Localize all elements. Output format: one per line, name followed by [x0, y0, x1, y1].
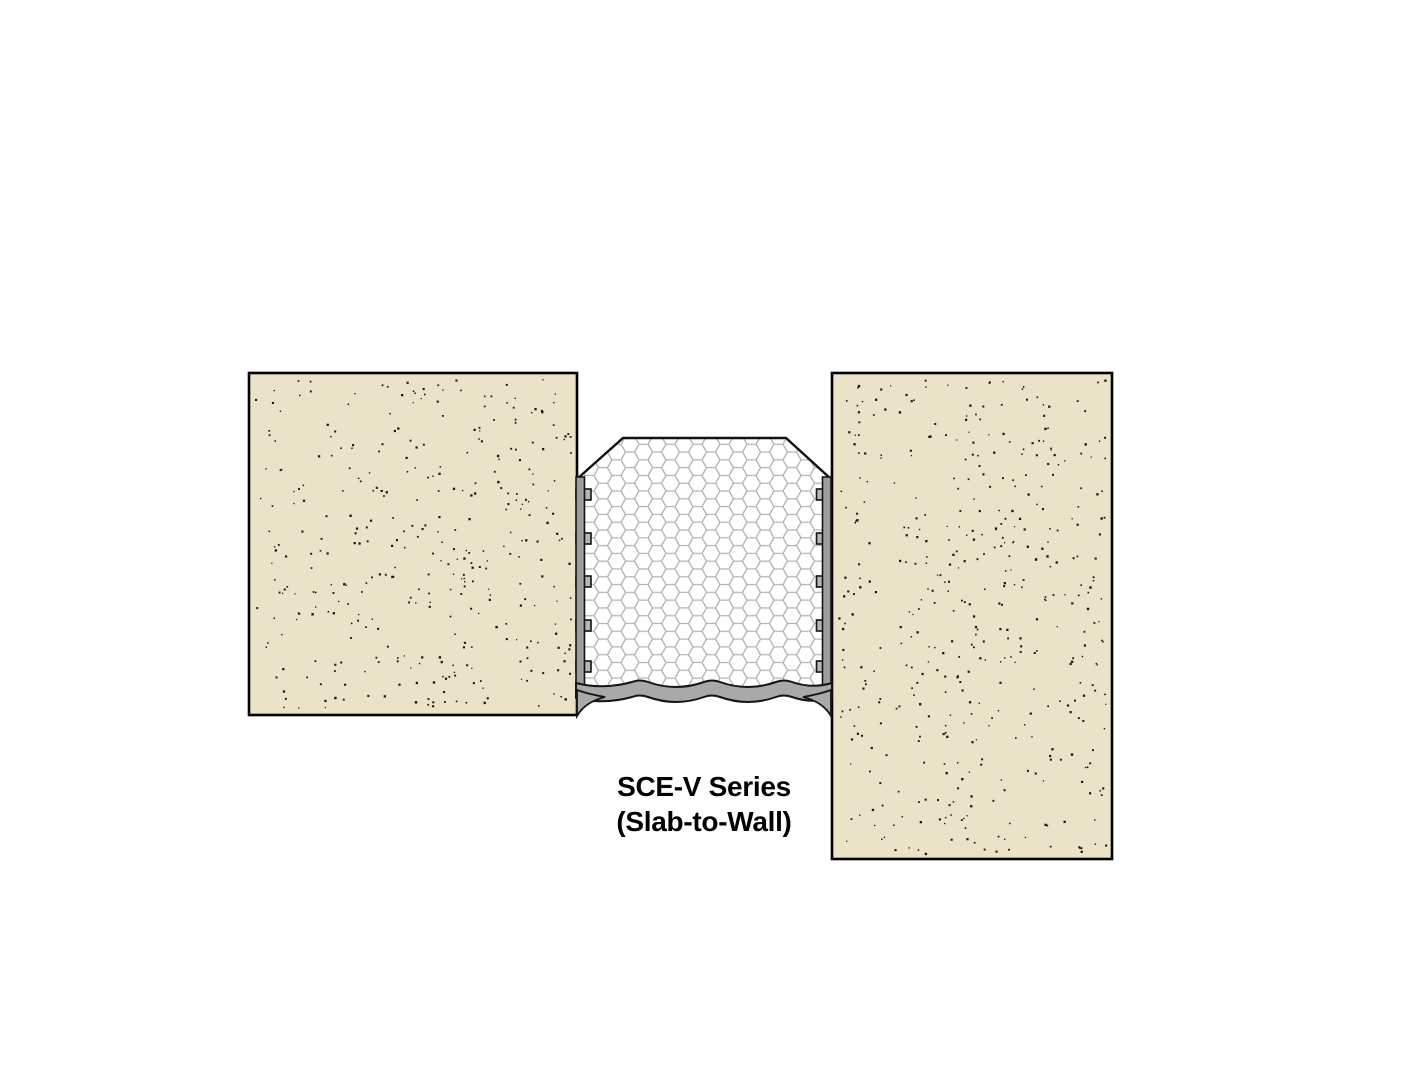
speckle-dot [437, 401, 439, 403]
speckle-dot [859, 477, 860, 478]
speckle-dot [441, 661, 443, 663]
speckle-dot [945, 732, 947, 734]
speckle-dot [303, 485, 305, 487]
speckle-dot [998, 510, 1000, 512]
speckle-dot [530, 640, 532, 642]
speckle-dot [378, 661, 380, 663]
speckle-dot [881, 455, 883, 457]
speckle-dot [1020, 645, 1022, 647]
speckle-dot [564, 653, 565, 654]
speckle-dot [934, 647, 936, 649]
speckle-dot [957, 488, 959, 490]
speckle-dot [864, 501, 866, 503]
speckle-dot [387, 386, 389, 388]
speckle-dot [1002, 537, 1004, 539]
speckle-dot [929, 435, 931, 437]
speckle-dot [968, 671, 970, 673]
speckle-dot [350, 637, 352, 639]
speckle-dot [283, 707, 284, 708]
speckle-dot [349, 515, 351, 517]
speckle-dot [893, 825, 895, 827]
speckle-dot [859, 578, 861, 580]
speckle-dot [327, 552, 329, 554]
speckle-dot [343, 584, 345, 586]
speckle-dot [500, 487, 502, 489]
speckle-dot [348, 404, 350, 406]
speckle-dot [969, 405, 971, 407]
speckle-dot [1101, 794, 1103, 796]
speckle-dot [966, 387, 968, 389]
speckle-dot [911, 667, 913, 669]
speckle-dot [293, 503, 294, 504]
speckle-dot [998, 836, 1000, 838]
speckle-dot [1102, 641, 1104, 643]
speckle-dot [1002, 477, 1004, 479]
speckle-dot [875, 591, 877, 593]
speckle-dot [331, 584, 332, 585]
speckle-dot [1054, 454, 1056, 456]
speckle-dot [958, 567, 959, 568]
speckle-dot [558, 647, 560, 649]
speckle-dot [1102, 787, 1104, 789]
speckle-dot [554, 480, 556, 482]
speckle-dot [881, 839, 882, 840]
speckle-dot [956, 439, 957, 440]
speckle-dot [525, 539, 527, 541]
speckle-dot [255, 399, 257, 401]
speckle-dot [1008, 849, 1010, 851]
speckle-dot [1011, 510, 1013, 512]
speckle-dot [369, 472, 370, 473]
speckle-dot [1101, 598, 1102, 599]
speckle-dot [856, 513, 858, 515]
speckle-dot [1071, 661, 1073, 663]
speckle-dot [841, 491, 843, 493]
speckle-dot [1080, 487, 1082, 489]
speckle-dot [568, 648, 570, 650]
speckle-dot [321, 538, 323, 540]
speckle-dot [1025, 474, 1027, 476]
speckle-dot [392, 517, 394, 519]
speckle-dot [274, 546, 275, 547]
speckle-dot [265, 468, 266, 469]
speckle-dot [475, 483, 476, 484]
speckle-dot [945, 691, 947, 693]
speckle-dot [432, 701, 434, 703]
speckle-dot [414, 393, 416, 395]
speckle-dot [525, 499, 527, 501]
speckle-dot [480, 680, 482, 682]
speckle-dot [969, 772, 970, 773]
speckle-dot [1080, 682, 1082, 684]
speckle-dot [315, 660, 317, 662]
speckle-dot [437, 384, 439, 386]
speckle-dot [969, 701, 971, 703]
speckle-dot [256, 607, 258, 609]
speckle-dot [371, 577, 373, 579]
speckle-dot [479, 566, 481, 568]
speckle-dot [386, 491, 388, 493]
caption-series-name: SCE-V Series [540, 769, 868, 804]
speckle-dot [918, 849, 920, 851]
speckle-dot [324, 700, 326, 702]
speckle-dot [961, 819, 963, 821]
speckle-dot [453, 488, 455, 490]
speckle-dot [880, 647, 882, 649]
speckle-dot [428, 593, 430, 595]
speckle-dot [911, 400, 913, 402]
speckle-dot [1094, 622, 1096, 624]
speckle-dot [541, 411, 543, 413]
speckle-dot [1084, 410, 1086, 412]
speckle-dot [855, 522, 857, 524]
speckle-dot [461, 578, 462, 579]
speckle-dot [956, 551, 958, 553]
speckle-dot [391, 545, 393, 547]
speckle-dot [285, 555, 287, 557]
seal-side-rail-right [823, 477, 832, 689]
speckle-dot [357, 620, 359, 622]
speckle-dot [879, 782, 881, 784]
seal-side-rail-left [576, 477, 585, 689]
speckle-dot [470, 608, 472, 610]
speckle-dot [1071, 602, 1073, 604]
speckle-dot [524, 598, 526, 600]
speckle-dot [1050, 566, 1052, 568]
speckle-dot [864, 452, 866, 454]
speckle-dot [453, 548, 455, 550]
speckle-dot [1099, 533, 1101, 535]
speckle-dot [1099, 790, 1101, 792]
speckle-dot [553, 586, 555, 588]
speckle-dot [957, 762, 959, 764]
speckle-dot [529, 468, 531, 470]
speckle-dot [966, 415, 967, 416]
speckle-dot [925, 386, 926, 387]
speckle-dot [965, 419, 967, 421]
speckle-dot [553, 402, 554, 403]
speckle-dot [911, 687, 913, 689]
speckle-dot [937, 575, 938, 576]
speckle-dot [482, 688, 483, 689]
speckle-dot [422, 528, 424, 530]
speckle-dot [971, 741, 973, 743]
speckle-dot [424, 524, 426, 526]
speckle-dot [944, 581, 946, 583]
speckle-dot [905, 394, 907, 396]
speckle-dot [958, 656, 960, 658]
speckle-dot [843, 595, 845, 597]
speckle-dot [528, 501, 529, 502]
speckle-dot [432, 476, 433, 477]
speckle-dot [349, 467, 351, 469]
speckle-dot [959, 510, 961, 512]
speckle-dot [484, 396, 486, 398]
speckle-dot [909, 847, 910, 848]
speckle-dot [856, 519, 858, 521]
speckle-dot [859, 586, 861, 588]
speckle-dot [421, 656, 423, 658]
speckle-dot [939, 818, 941, 820]
speckle-dot [516, 500, 518, 502]
speckle-dot [416, 682, 418, 684]
speckle-dot [279, 592, 281, 594]
speckle-dot [880, 722, 882, 724]
speckle-dot [538, 705, 540, 707]
speckle-dot [1077, 400, 1079, 402]
speckle-dot [382, 384, 384, 386]
speckle-dot [1072, 657, 1074, 659]
speckle-dot [1057, 530, 1059, 532]
speckle-dot [842, 649, 844, 651]
speckle-dot [1007, 638, 1009, 640]
speckle-dot [467, 452, 469, 454]
speckle-dot [989, 486, 991, 488]
speckle-dot [1001, 779, 1002, 780]
speckle-dot [1087, 608, 1089, 610]
speckle-dot [842, 628, 844, 630]
speckle-dot [1013, 541, 1014, 542]
speckle-dot [1041, 548, 1043, 550]
speckle-dot [1071, 753, 1073, 755]
speckle-dot [964, 560, 966, 562]
speckle-dot [921, 599, 922, 600]
speckle-dot [1003, 381, 1004, 382]
speckle-dot [563, 660, 565, 662]
speckle-dot [396, 539, 398, 541]
speckle-dot [354, 542, 356, 544]
speckle-dot [918, 740, 920, 742]
speckle-dot [910, 450, 912, 452]
speckle-dot [1081, 851, 1083, 853]
speckle-dot [556, 437, 558, 439]
speckle-dot [519, 583, 521, 585]
speckle-dot [437, 531, 438, 532]
speckle-dot [838, 617, 840, 619]
speckle-dot [898, 791, 900, 793]
speckle-dot [518, 556, 520, 558]
speckle-dot [342, 490, 344, 492]
speckle-dot [858, 563, 860, 565]
speckle-dot [565, 698, 567, 700]
speckle-dot [507, 493, 509, 495]
speckle-dot [1095, 558, 1097, 560]
speckle-dot [945, 434, 947, 436]
speckle-dot [1022, 388, 1024, 390]
speckle-dot [977, 558, 979, 560]
speckle-dot [1043, 441, 1044, 442]
caption-application: (Slab-to-Wall) [540, 804, 868, 839]
diagram-caption: SCE-V Series (Slab-to-Wall) [540, 769, 868, 839]
speckle-dot [1021, 587, 1023, 589]
speckle-dot [1000, 523, 1002, 525]
speckle-dot [963, 818, 964, 819]
speckle-dot [862, 688, 864, 690]
speckle-dot [899, 411, 901, 413]
speckle-dot [442, 676, 444, 678]
speckle-dot [1023, 449, 1025, 451]
speckle-dot [845, 507, 847, 509]
speckle-dot [1074, 700, 1076, 702]
concrete-slab-left [249, 373, 577, 715]
speckle-dot [1067, 704, 1069, 706]
speckle-dot [278, 544, 280, 546]
speckle-dot [948, 590, 950, 592]
speckle-dot [275, 549, 277, 551]
speckle-dot [411, 525, 413, 527]
speckle-dot [1045, 596, 1047, 598]
speckle-dot [298, 380, 300, 382]
speckle-dot [537, 642, 539, 644]
speckle-dot [1006, 629, 1008, 631]
speckle-dot [1084, 644, 1086, 646]
speckle-dot [1023, 579, 1025, 581]
speckle-dot [497, 481, 499, 483]
speckle-dot [1050, 449, 1051, 450]
speckle-dot [981, 758, 983, 760]
speckle-dot [473, 682, 475, 684]
speckle-dot [956, 676, 958, 678]
speckle-dot [989, 381, 991, 383]
speckle-dot [559, 540, 561, 542]
speckle-dot [926, 563, 928, 565]
speckle-dot [1104, 437, 1106, 439]
speckle-dot [862, 401, 863, 402]
speckle-dot [448, 676, 450, 678]
speckle-dot [1004, 542, 1005, 543]
speckle-dot [992, 800, 994, 802]
speckle-dot [973, 615, 975, 617]
speckle-dot [1050, 759, 1052, 761]
speckle-dot [1046, 555, 1048, 557]
speckle-dot [925, 853, 927, 855]
speckle-dot [908, 527, 910, 529]
speckle-dot [983, 641, 985, 643]
speckle-dot [510, 532, 512, 534]
speckle-dot [472, 567, 474, 569]
speckle-dot [861, 735, 863, 737]
speckle-dot [376, 487, 378, 489]
speckle-dot [1104, 728, 1105, 729]
speckle-dot [851, 738, 853, 740]
speckle-dot [1014, 662, 1015, 663]
speckle-dot [462, 490, 463, 491]
speckle-dot [884, 408, 886, 410]
speckle-dot [1019, 637, 1021, 639]
speckle-dot [515, 449, 517, 451]
speckle-dot [1070, 711, 1072, 713]
speckle-dot [872, 809, 874, 811]
speckle-dot [1036, 650, 1038, 652]
speckle-dot [407, 382, 409, 384]
speckle-dot [404, 547, 406, 549]
speckle-dot [919, 736, 921, 738]
speckle-dot [280, 411, 281, 412]
speckle-dot [916, 726, 918, 728]
speckle-dot [948, 581, 950, 583]
speckle-dot [867, 481, 868, 482]
speckle-dot [980, 764, 982, 766]
speckle-dot [1072, 518, 1073, 519]
speckle-dot [472, 581, 474, 583]
speckle-dot [988, 725, 989, 726]
speckle-dot [1021, 453, 1023, 455]
speckle-dot [311, 567, 313, 569]
speckle-dot [570, 452, 572, 454]
speckle-dot [1093, 580, 1095, 582]
speckle-dot [982, 473, 984, 475]
speckle-dot [925, 799, 927, 801]
speckle-dot [377, 628, 379, 630]
speckle-dot [378, 451, 380, 453]
speckle-dot [272, 402, 274, 404]
speckle-dot [923, 762, 925, 764]
speckle-dot [842, 711, 844, 713]
speckle-dot [913, 399, 915, 401]
speckle-dot [977, 629, 979, 631]
speckle-dot [1010, 569, 1011, 570]
speckle-dot [1044, 824, 1046, 826]
speckle-dot [918, 801, 920, 803]
speckle-dot [1005, 518, 1007, 520]
speckle-dot [996, 529, 997, 530]
speckle-dot [915, 497, 916, 498]
speckle-dot [1099, 441, 1100, 442]
speckle-dot [943, 733, 945, 735]
speckle-dot [366, 527, 368, 529]
speckle-dot [555, 624, 556, 625]
speckle-dot [864, 680, 866, 682]
speckle-dot [911, 636, 912, 637]
speckle-dot [564, 439, 565, 440]
speckle-dot [553, 424, 555, 426]
speckle-dot [1035, 558, 1037, 560]
speckle-dot [1043, 404, 1044, 405]
speckle-dot [315, 592, 317, 594]
speckle-dot [385, 574, 387, 576]
speckle-dot [849, 709, 851, 711]
speckle-dot [358, 614, 359, 615]
speckle-dot [521, 540, 522, 541]
speckle-dot [569, 673, 571, 675]
speckle-dot [487, 560, 488, 561]
speckle-dot [560, 696, 562, 698]
speckle-dot [367, 695, 369, 697]
speckle-dot [983, 553, 985, 555]
speckle-dot [1060, 759, 1062, 761]
speckle-dot [1081, 781, 1083, 783]
speckle-dot [901, 643, 903, 645]
speckle-dot [408, 602, 410, 604]
speckle-dot [961, 600, 963, 602]
speckle-dot [1044, 428, 1046, 430]
speckle-dot [922, 673, 924, 675]
speckle-dot [1097, 664, 1098, 665]
speckle-dot [946, 736, 948, 738]
speckle-dot [364, 671, 365, 672]
speckle-dot [896, 708, 898, 710]
speckle-dot [343, 699, 345, 701]
speckle-dot [846, 841, 847, 842]
speckle-dot [1053, 594, 1055, 596]
speckle-dot [532, 473, 533, 474]
speckle-dot [1050, 448, 1052, 450]
concrete-wall-right [832, 373, 1112, 859]
speckle-dot [397, 657, 399, 659]
speckle-dot [854, 725, 856, 727]
speckle-dot [372, 619, 373, 620]
speckle-dot [947, 385, 948, 386]
